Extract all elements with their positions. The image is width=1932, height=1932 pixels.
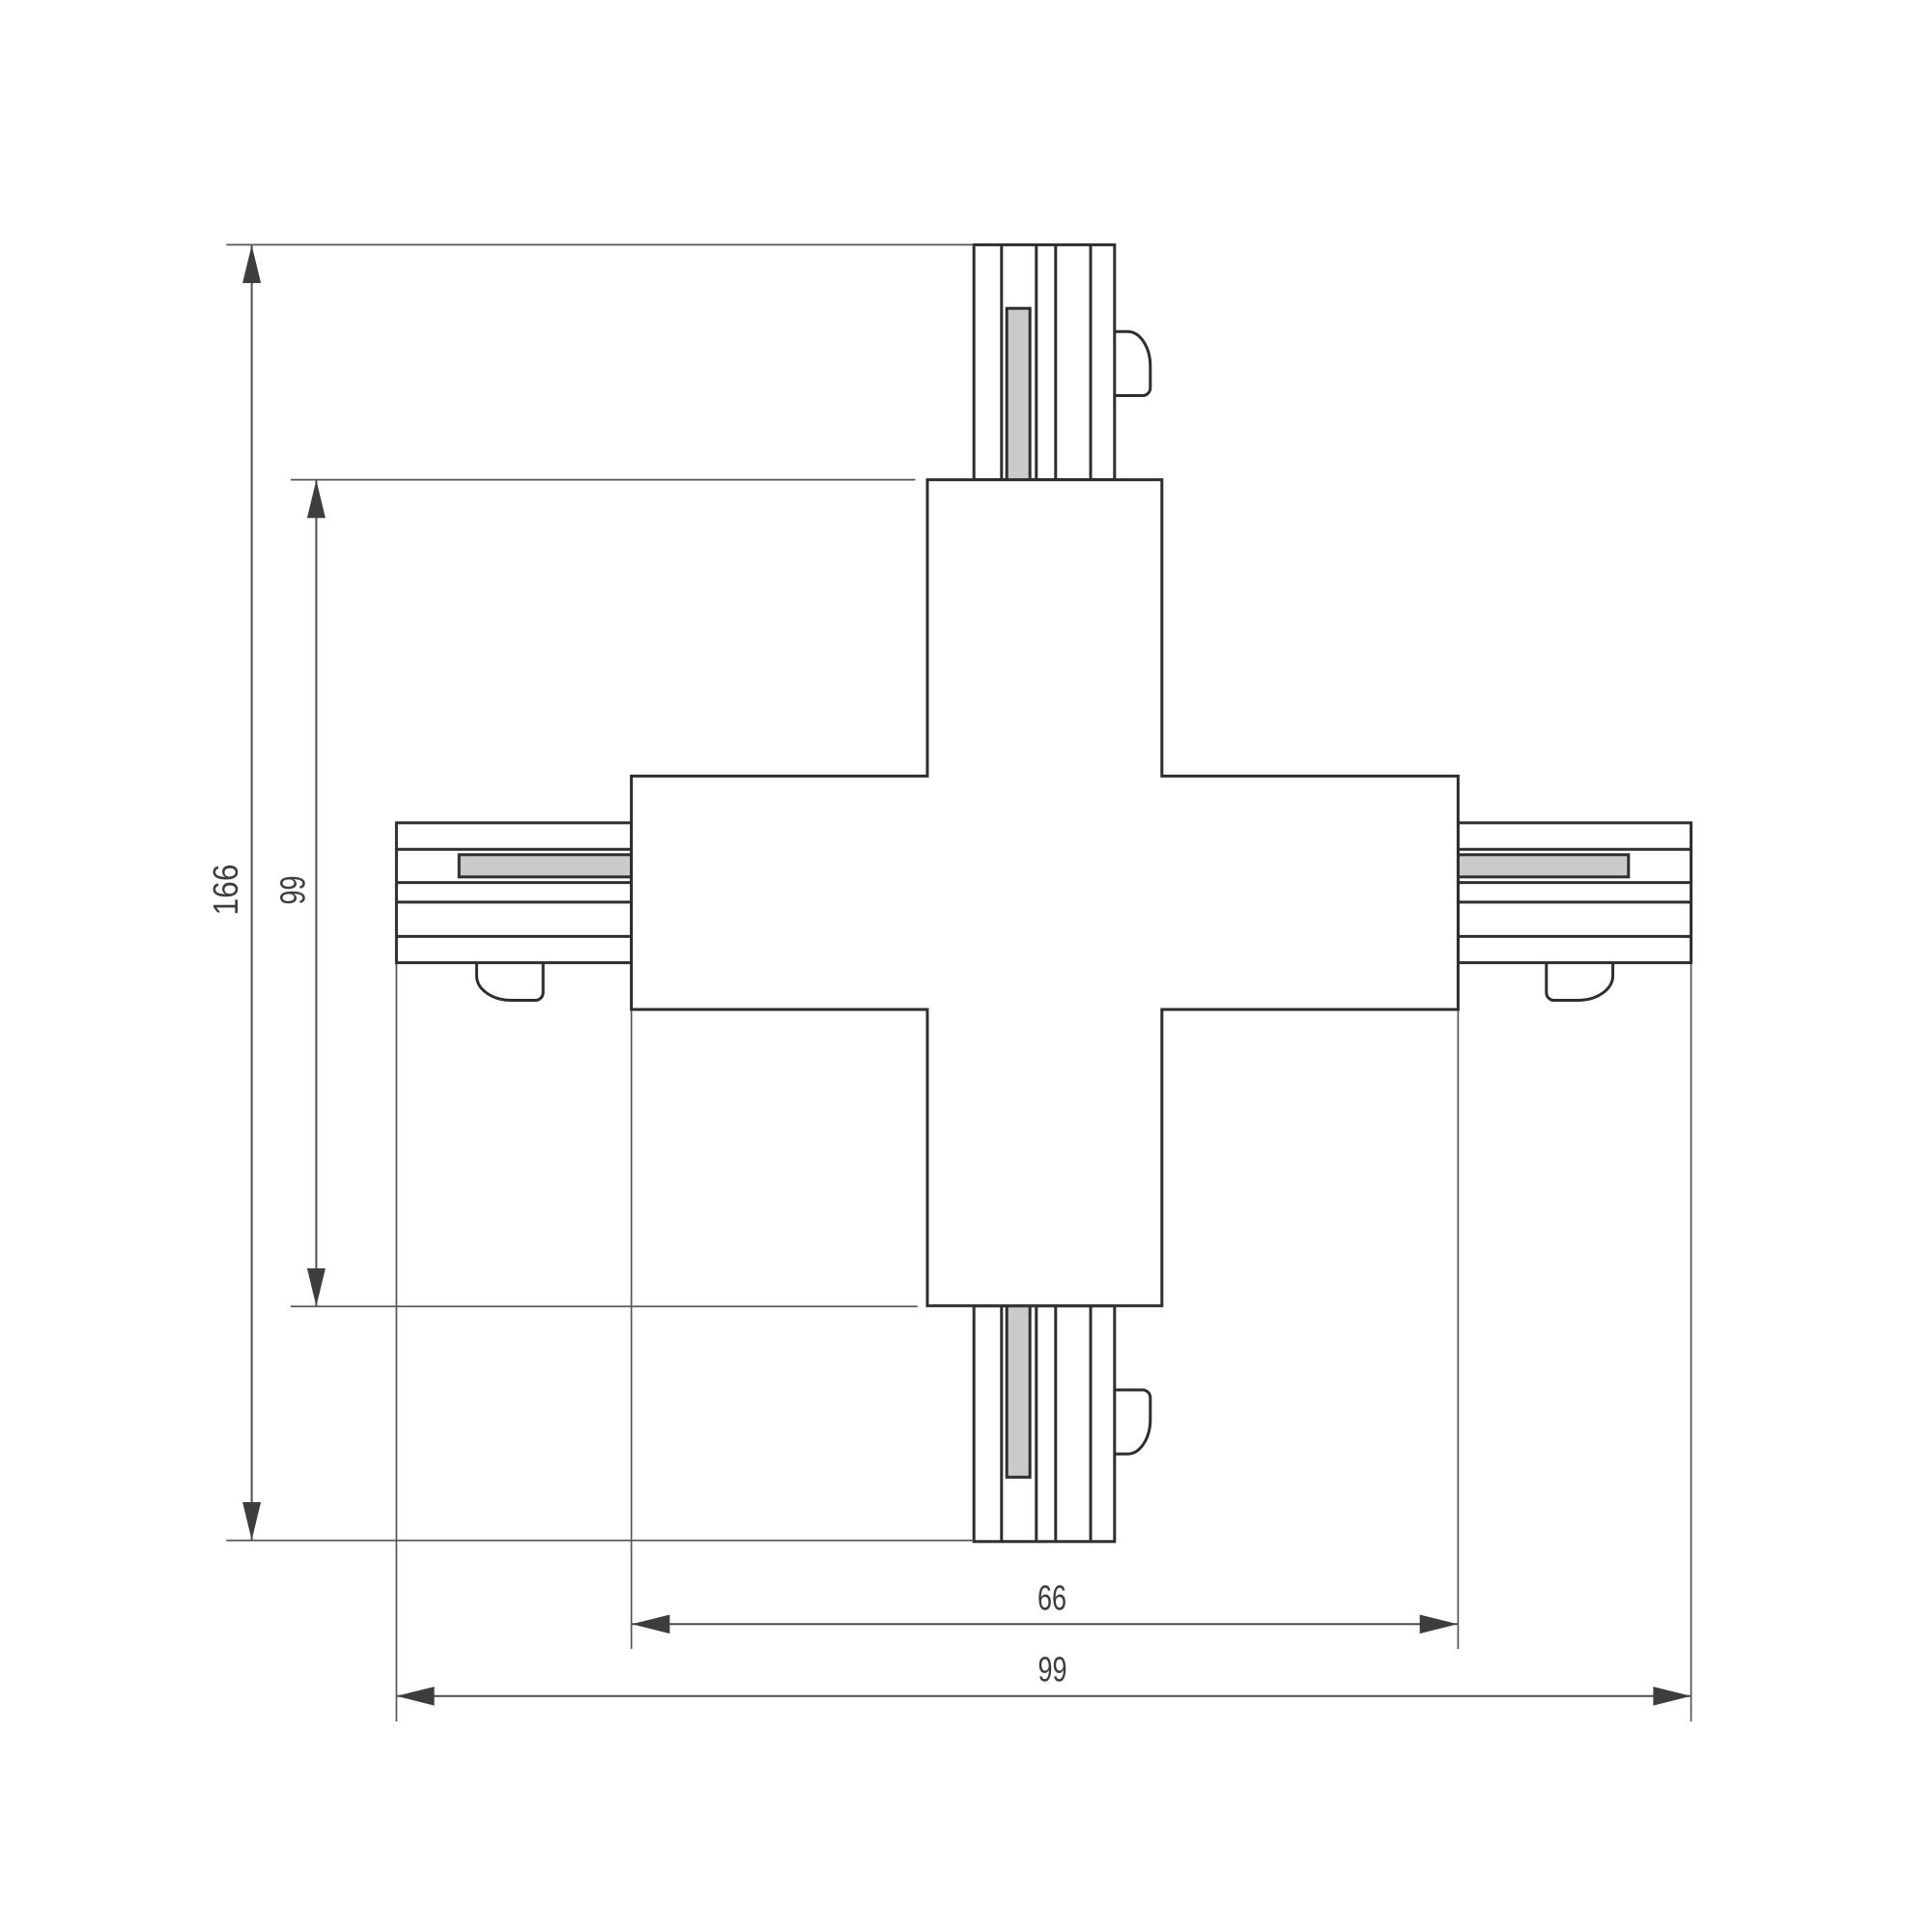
svg-text:166: 166	[206, 865, 245, 916]
svg-text:66: 66	[1037, 1578, 1066, 1618]
svg-text:99: 99	[1038, 1650, 1067, 1690]
svg-text:99: 99	[273, 876, 313, 905]
